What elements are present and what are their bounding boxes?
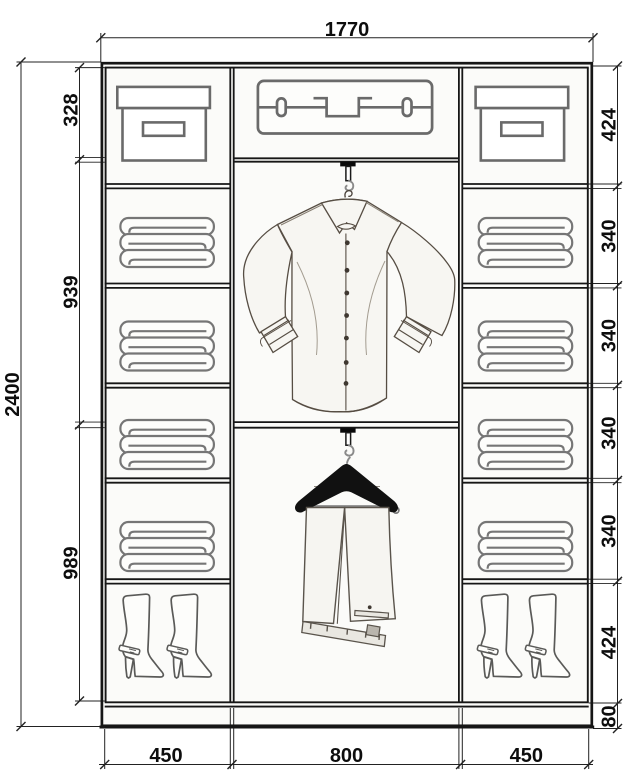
svg-text:800: 800	[330, 745, 363, 767]
svg-text:340: 340	[598, 219, 620, 252]
svg-text:450: 450	[510, 745, 543, 767]
svg-text:340: 340	[598, 514, 620, 547]
svg-text:939: 939	[61, 275, 83, 308]
svg-text:340: 340	[598, 416, 620, 449]
svg-text:328: 328	[61, 93, 83, 126]
svg-text:450: 450	[149, 745, 182, 767]
svg-text:989: 989	[61, 546, 83, 579]
svg-text:2400: 2400	[2, 372, 24, 417]
svg-text:1770: 1770	[325, 19, 370, 41]
svg-text:424: 424	[598, 107, 620, 141]
svg-text:424: 424	[598, 625, 620, 659]
svg-text:80: 80	[598, 705, 620, 727]
svg-text:340: 340	[598, 319, 620, 352]
